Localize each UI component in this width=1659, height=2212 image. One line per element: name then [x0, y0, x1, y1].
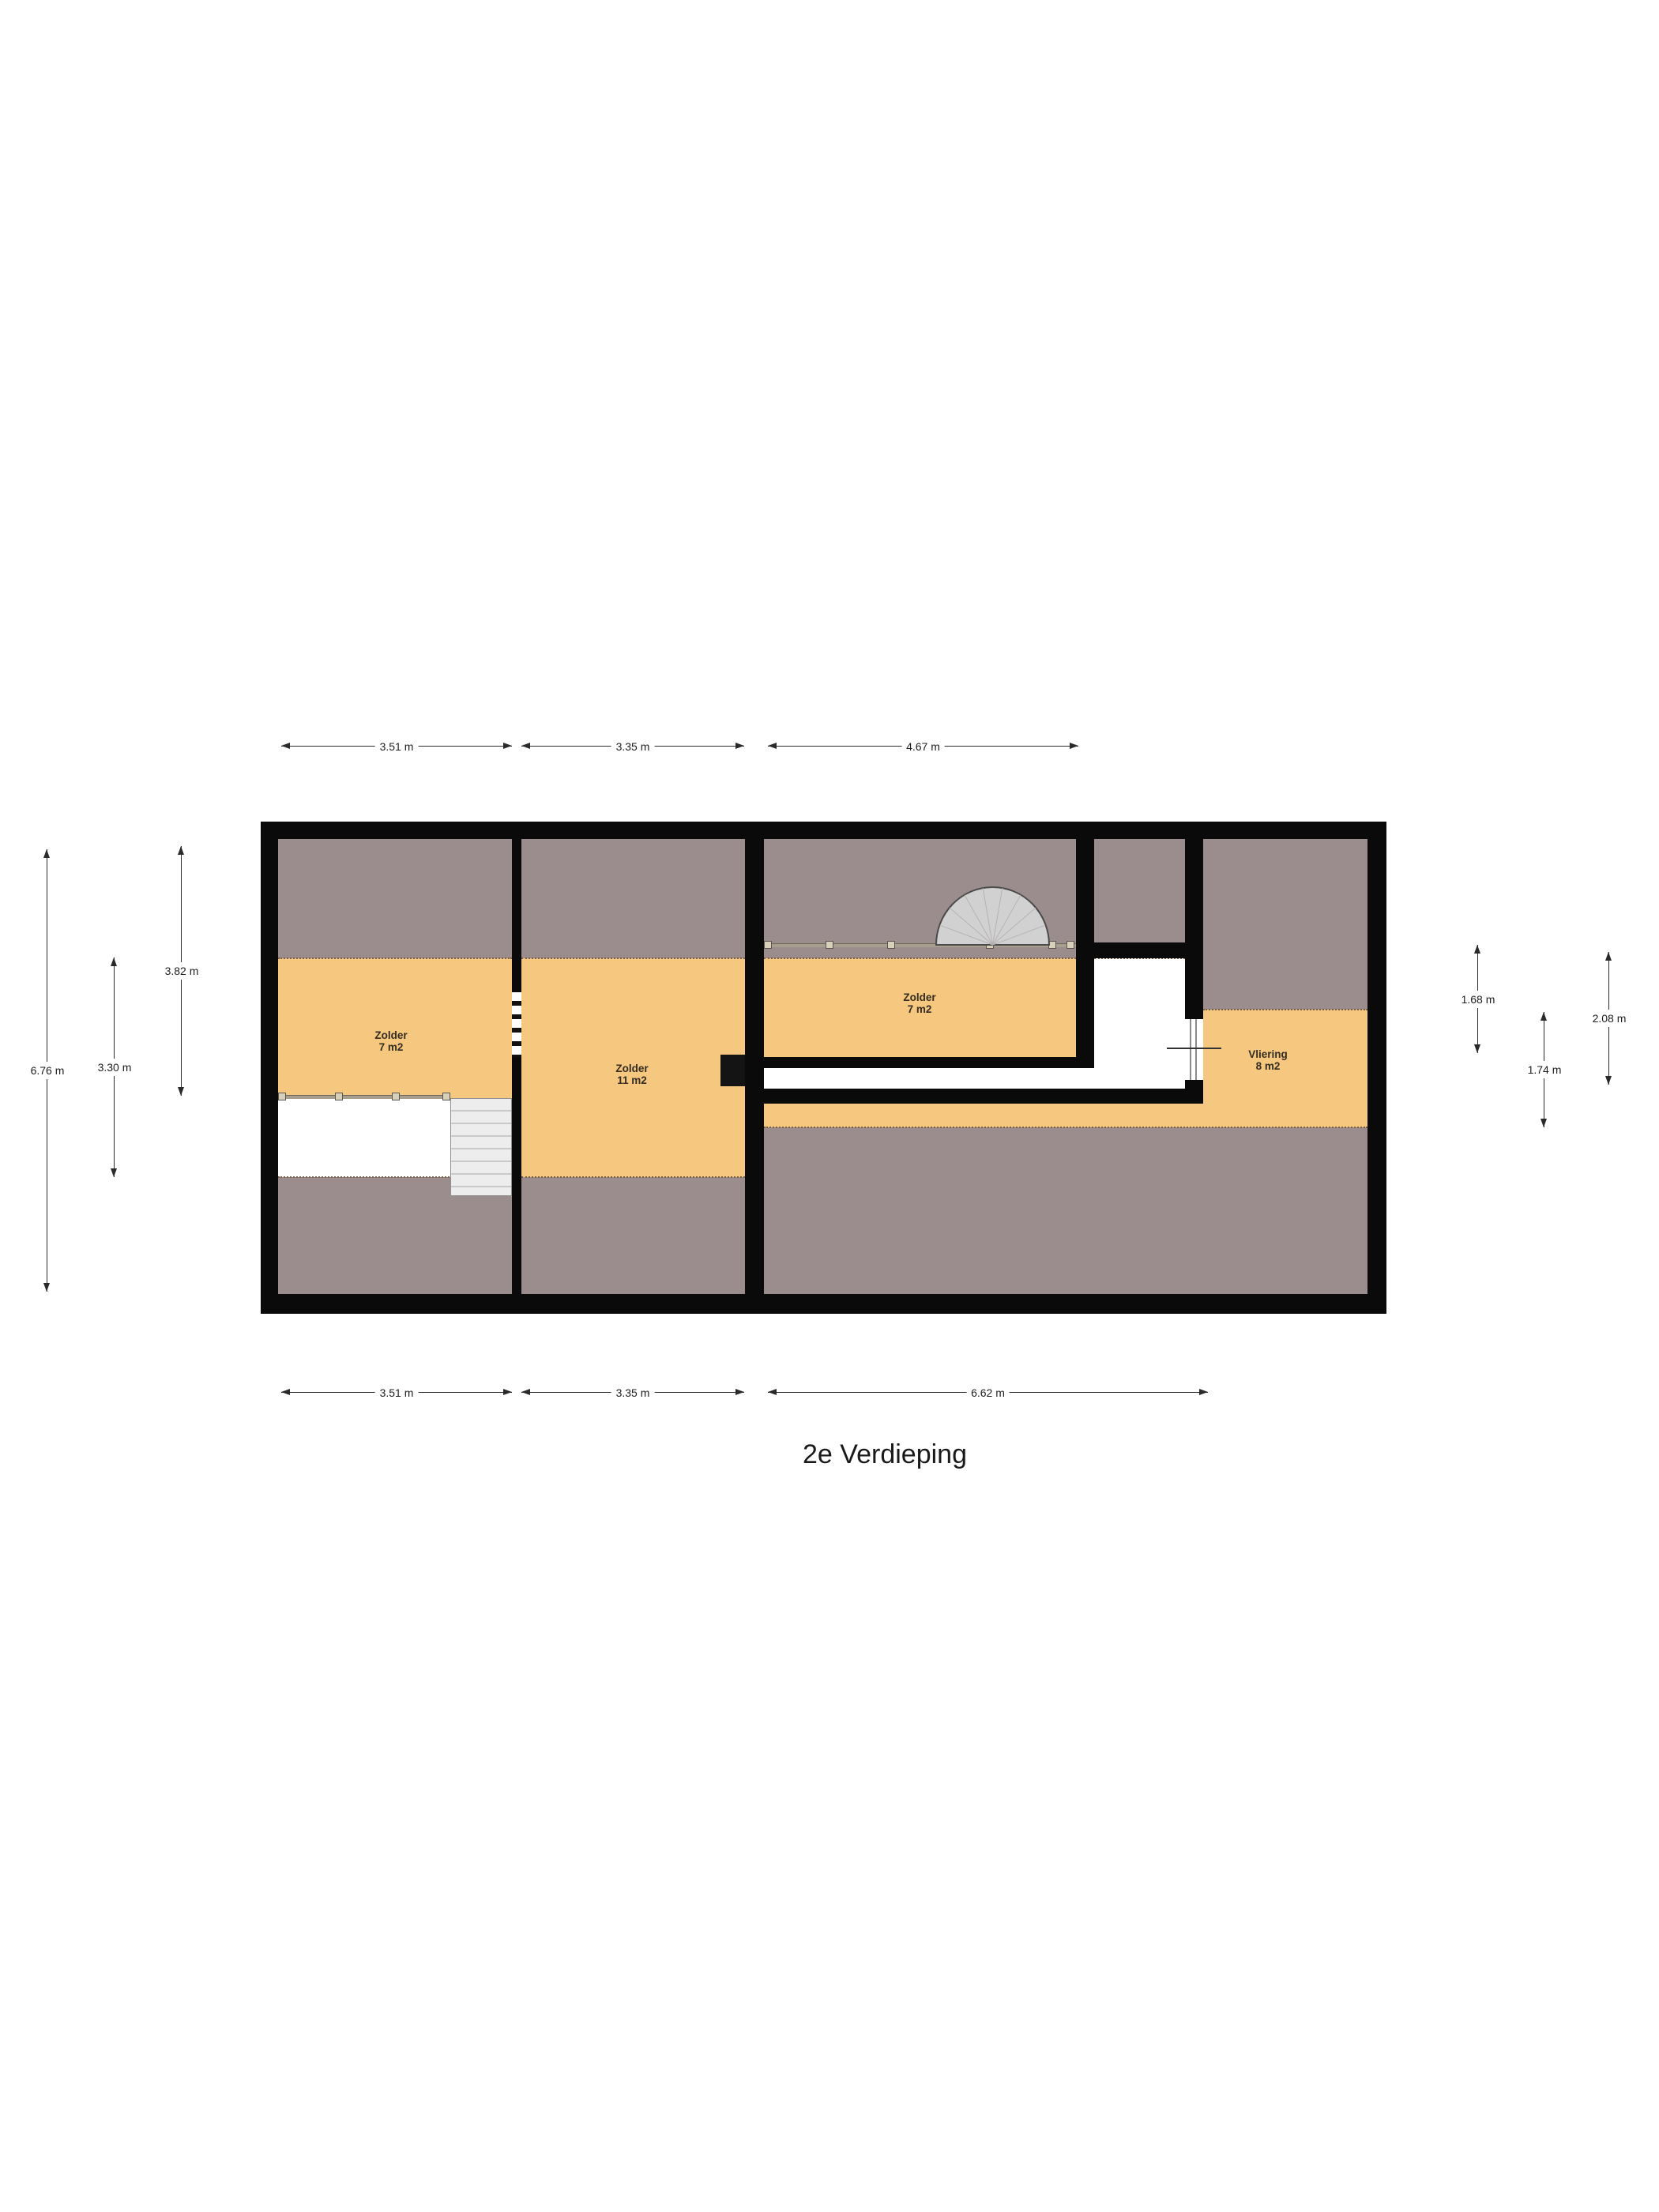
dimension-label: 3.82 m [164, 962, 201, 980]
headroom-boundary [278, 957, 512, 959]
room-name: Zolder [903, 991, 935, 1003]
interior-wall [745, 839, 764, 1294]
dimension-left-3: 3.82 m [175, 846, 189, 1096]
outer-wall-bottom [261, 1294, 1386, 1314]
railing-post [764, 941, 772, 949]
roof-slope-area [1094, 839, 1185, 942]
dimension-bottom-1: 3.51 m [281, 1386, 512, 1400]
hatch-rail [1190, 1019, 1191, 1080]
room-name: Zolder [615, 1063, 648, 1074]
dimension-label: 1.68 m [1460, 991, 1497, 1008]
landing-room [1094, 958, 1185, 1089]
room-area: 7 m2 [374, 1041, 407, 1053]
dimension-label: 6.76 m [29, 1062, 66, 1079]
railing-post [826, 941, 833, 949]
spiral-staircase [935, 886, 1051, 946]
railing-post [1066, 941, 1074, 949]
stairwell-void [278, 1098, 450, 1177]
room-floor-vliering-band [764, 1104, 1203, 1127]
floor-title: 2e Verdieping [803, 1439, 967, 1470]
dimension-label: 1.74 m [1526, 1061, 1563, 1078]
dimension-label: 2.08 m [1591, 1010, 1628, 1027]
railing [278, 1095, 450, 1099]
dimension-label: 4.67 m [901, 740, 945, 753]
dimension-label: 3.35 m [611, 1386, 655, 1399]
dimension-bottom-3: 6.62 m [768, 1386, 1208, 1400]
railing-post [278, 1093, 286, 1100]
chimney-block [720, 1055, 745, 1086]
wall-opening-dashed [512, 992, 521, 1057]
railing-post [335, 1093, 343, 1100]
dimension-left-1: 6.76 m [40, 849, 55, 1292]
railing-post [442, 1093, 450, 1100]
interior-wall [512, 839, 521, 1294]
hatch-line [1167, 1048, 1221, 1049]
outer-wall-top [261, 822, 1386, 839]
roof-slope-area [764, 1127, 1367, 1294]
dimension-label: 3.30 m [96, 1059, 134, 1076]
floor-plan: Zolder 7 m2 Zolder 11 m2 Zolder 7 m2 Vli… [0, 0, 1659, 2212]
dimension-label: 3.51 m [375, 1386, 419, 1399]
headroom-boundary [521, 1176, 745, 1178]
room-name: Vliering [1248, 1048, 1288, 1060]
room-area: 7 m2 [903, 1003, 935, 1015]
room-area: 8 m2 [1248, 1060, 1288, 1072]
room-label-zolder-3: Zolder 7 m2 [903, 991, 935, 1015]
headroom-boundary [764, 957, 1076, 959]
wall-opening [1185, 1019, 1203, 1080]
room-label-zolder-2: Zolder 11 m2 [615, 1063, 648, 1086]
roof-slope-area [278, 1177, 450, 1294]
roof-slope-area [278, 839, 512, 958]
railing-post [887, 941, 895, 949]
dimension-top-1: 3.51 m [281, 739, 512, 754]
interior-wall [764, 1089, 1203, 1104]
railing-post [392, 1093, 400, 1100]
dimension-label: 3.35 m [611, 740, 655, 753]
room-name: Zolder [374, 1029, 407, 1041]
room-label-zolder-1: Zolder 7 m2 [374, 1029, 407, 1053]
dimension-left-2: 3.30 m [107, 957, 122, 1177]
dimension-top-3: 4.67 m [768, 739, 1078, 754]
roof-slope-area [521, 839, 745, 958]
staircase [450, 1098, 512, 1196]
room-area: 11 m2 [615, 1074, 648, 1086]
headroom-boundary [521, 957, 745, 959]
roof-slope-area [1203, 839, 1367, 1010]
dimension-right-3: 2.08 m [1602, 952, 1616, 1085]
interior-wall [1185, 839, 1203, 1019]
headroom-boundary [764, 1127, 1367, 1128]
interior-wall [1076, 942, 1203, 958]
dimension-right-1: 1.68 m [1471, 945, 1485, 1053]
dimension-label: 3.51 m [375, 740, 419, 753]
dimension-top-2: 3.35 m [521, 739, 744, 754]
hatch-rail [1195, 1019, 1197, 1080]
interior-wall [764, 1057, 1094, 1068]
outer-wall-right [1367, 839, 1386, 1294]
outer-wall-left [261, 839, 278, 1294]
interior-wall [1185, 1080, 1203, 1089]
dimension-right-2: 1.74 m [1537, 1012, 1552, 1127]
roof-slope-area [521, 1177, 745, 1294]
dimension-label: 6.62 m [966, 1386, 1010, 1399]
headroom-boundary [1203, 1009, 1367, 1010]
roof-slope-area [450, 1196, 512, 1294]
room-floor-zolder-1 [278, 958, 512, 1098]
dimension-bottom-2: 3.35 m [521, 1386, 744, 1400]
room-label-vliering: Vliering 8 m2 [1248, 1048, 1288, 1072]
